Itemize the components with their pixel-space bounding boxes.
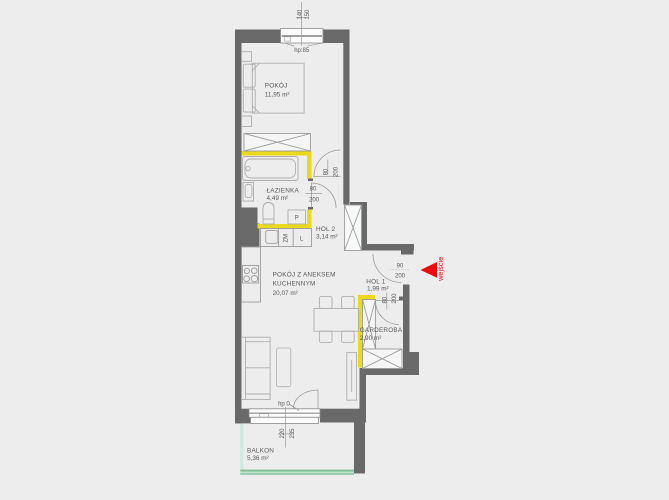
svg-text:11,95 m²: 11,95 m² — [265, 92, 290, 99]
svg-text:POKÓJ: POKÓJ — [265, 81, 288, 90]
svg-text:5,36 m²: 5,36 m² — [247, 455, 269, 462]
svg-text:4,49 m²: 4,49 m² — [267, 195, 289, 202]
svg-text:220: 220 — [280, 428, 286, 439]
svg-text:ZM: ZM — [283, 234, 289, 243]
svg-text:235: 235 — [290, 428, 296, 439]
svg-text:GARDEROBA: GARDEROBA — [360, 327, 403, 334]
svg-text:2,90 m²: 2,90 m² — [360, 335, 382, 342]
svg-text:POKÓJ Z ANEKSEM: POKÓJ Z ANEKSEM — [273, 270, 336, 279]
svg-text:ŁAZIENKA: ŁAZIENKA — [267, 187, 300, 194]
svg-text:hp 0: hp 0 — [278, 402, 290, 408]
svg-text:3,14 m²: 3,14 m² — [316, 234, 338, 241]
svg-text:P: P — [295, 215, 299, 221]
svg-text:80: 80 — [323, 168, 329, 175]
svg-text:HOL 2: HOL 2 — [316, 226, 335, 233]
svg-text:150: 150 — [305, 9, 311, 20]
svg-text:200: 200 — [309, 198, 320, 204]
svg-text:KUCHENNYM: KUCHENNYM — [273, 281, 316, 288]
svg-text:20,07 m²: 20,07 m² — [273, 290, 298, 297]
svg-text:wejście: wejście — [436, 257, 445, 282]
svg-text:200: 200 — [392, 293, 398, 304]
svg-text:BALKON: BALKON — [247, 448, 274, 455]
svg-text:1,99 m²: 1,99 m² — [367, 286, 389, 293]
svg-text:200: 200 — [333, 166, 339, 177]
svg-text:140: 140 — [298, 9, 304, 20]
svg-text:80: 80 — [310, 187, 317, 193]
svg-text:80: 80 — [382, 296, 388, 303]
svg-text:hp:85: hp:85 — [294, 48, 310, 54]
svg-text:200: 200 — [395, 274, 406, 280]
svg-text:90: 90 — [397, 264, 404, 270]
svg-text:HOL 1: HOL 1 — [366, 279, 385, 286]
